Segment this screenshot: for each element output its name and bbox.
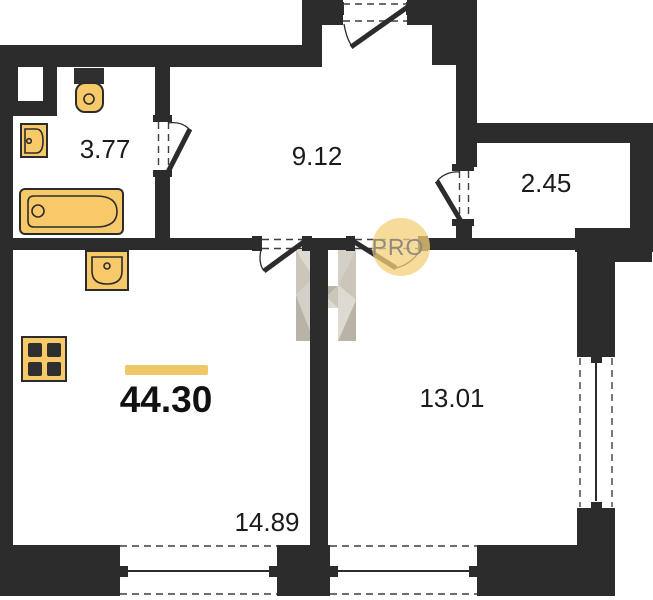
toilet-icon [74,68,104,112]
closet-area-label: 2.45 [521,168,572,198]
window-bedroom-bottom [330,546,477,594]
hallway-area-label: 9.12 [292,141,343,171]
floorplan-drawing: 3.77 9.12 2.45 13.01 14.89 44.30 PRO [0,0,653,600]
closet-door [437,171,469,223]
total-area-accent-bar [125,365,208,375]
window-bedroom-right [580,358,612,507]
stove-icon [22,337,66,381]
bedroom-area-label: 13.01 [419,383,484,413]
bathroom-area-label: 3.77 [80,134,131,164]
bathroom-door [159,122,191,174]
bathtub-icon [20,189,123,234]
bathroom-sink-icon [21,124,47,157]
entrance-door [343,4,409,47]
window-living-room [120,546,277,594]
kitchen-sink-icon [86,251,128,290]
living-room-area-label: 14.89 [234,507,299,537]
duct-niche [18,67,43,101]
pro-badge-label: PRO [372,234,425,260]
total-area-label: 44.30 [120,379,213,420]
floorplan-canvas: 3.77 9.12 2.45 13.01 14.89 44.30 PRO [0,0,653,600]
